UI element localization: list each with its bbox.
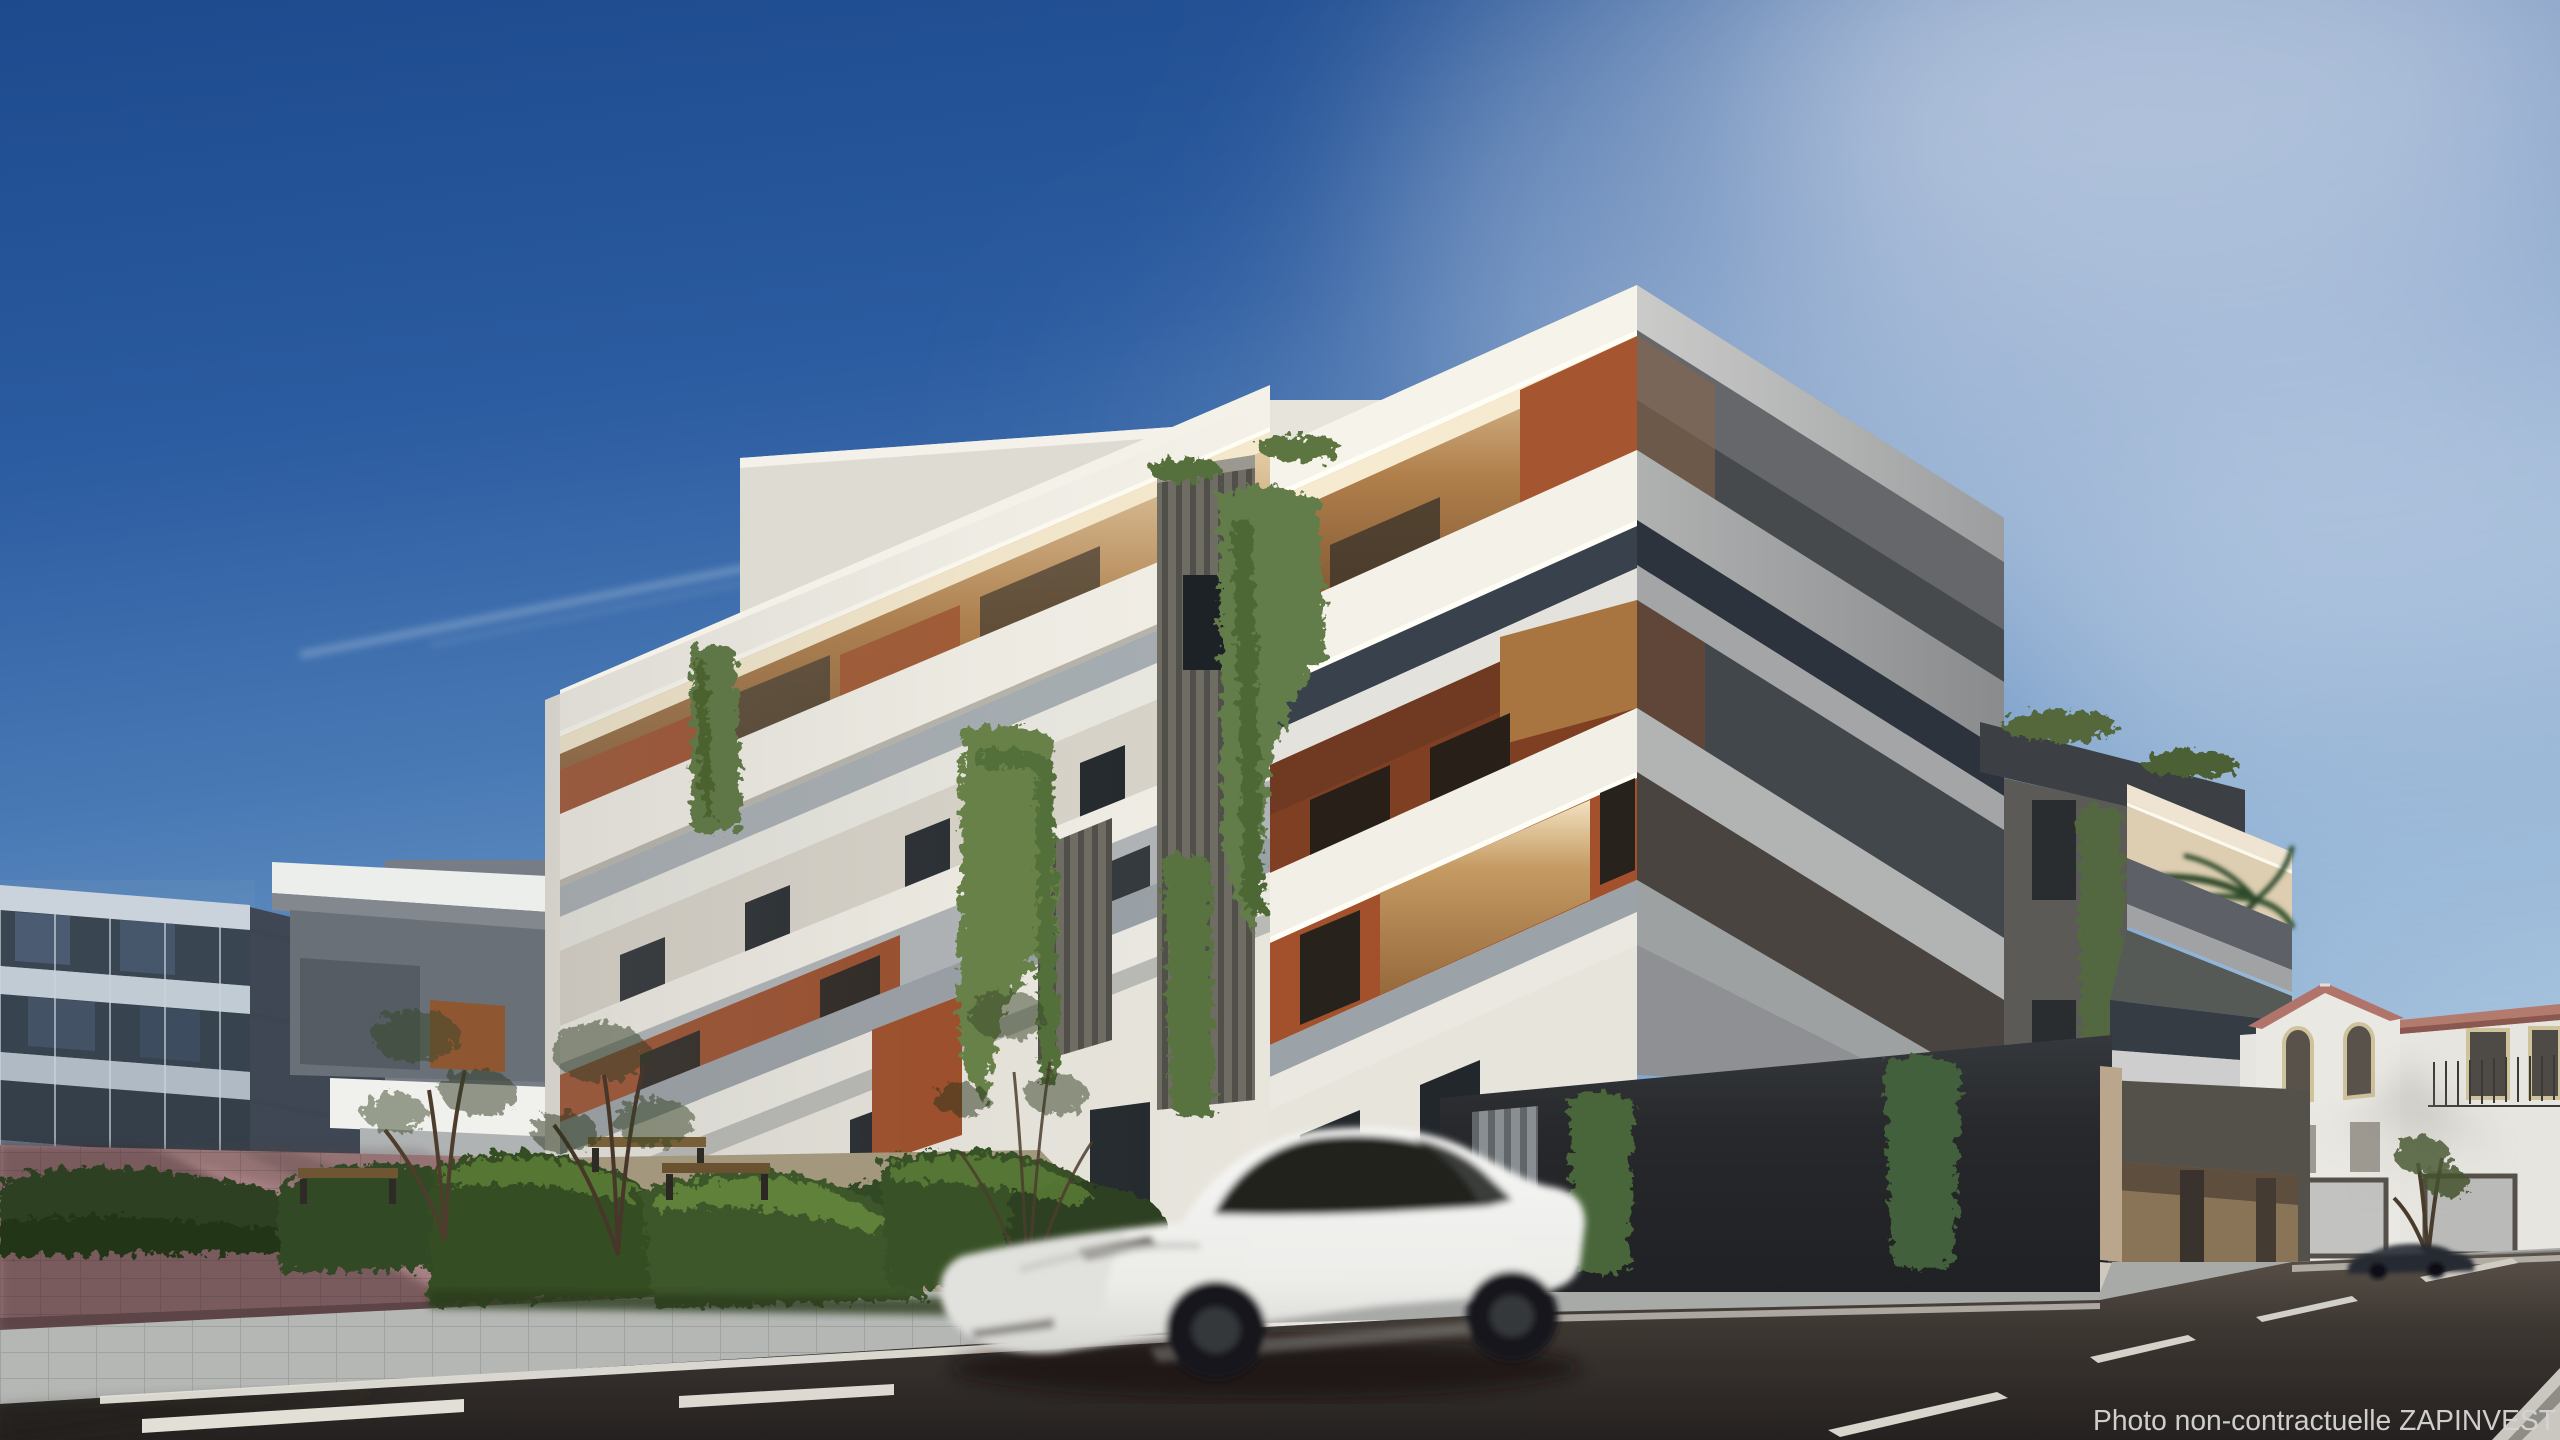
svg-text:Photo non-contractuelle ZAPINV: Photo non-contractuelle ZAPINVEST	[2093, 1405, 2556, 1437]
